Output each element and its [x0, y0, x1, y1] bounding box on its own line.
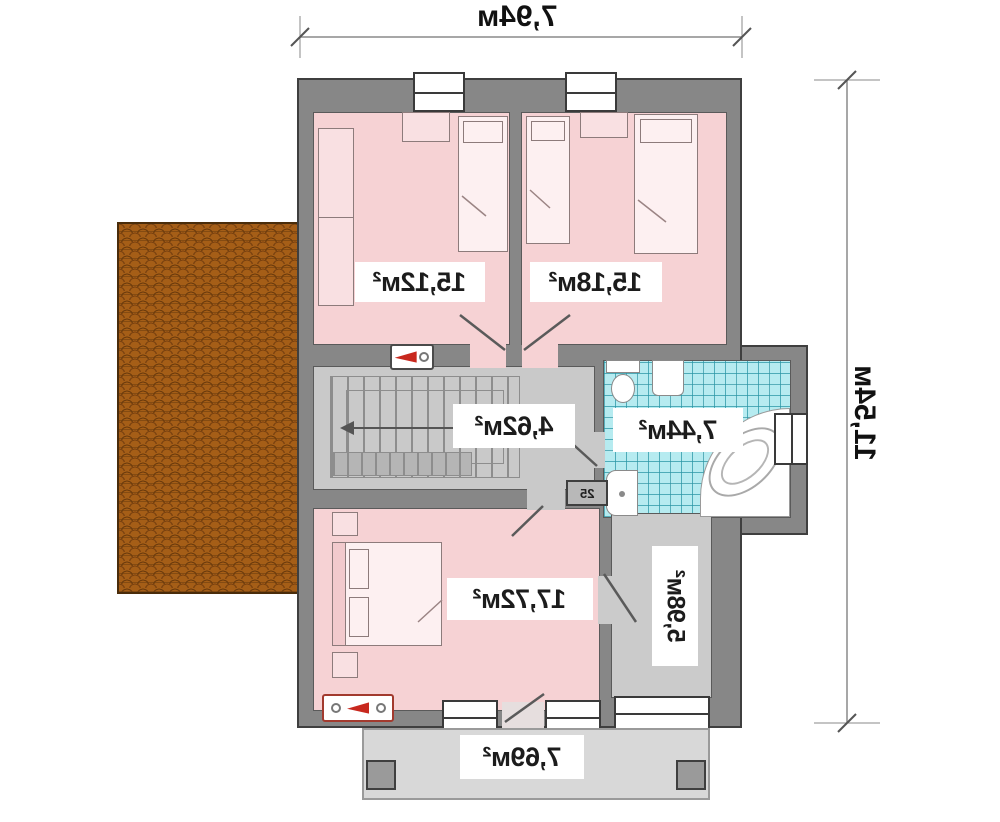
double-bed-bedroom-bottom: [332, 542, 442, 646]
dim-tick: [733, 28, 751, 46]
sink: [652, 360, 684, 396]
floor-plan-canvas: 25: [0, 0, 1000, 822]
washbasin-small: [606, 470, 638, 516]
bed-bedroom-tl: [458, 116, 508, 252]
label-dressing-room: 5,98м²: [652, 546, 698, 666]
panel-circle-icon: [419, 352, 429, 362]
toilet-bowl: [611, 374, 635, 403]
toilet-tank: [606, 360, 640, 373]
door-opening-bedroom-tl: [470, 344, 506, 368]
door-opening-bedroom-tr: [522, 344, 558, 368]
label-bedroom-top-right: 15,18м²: [530, 262, 662, 302]
window-top-2: [565, 72, 617, 112]
window-bathroom: [774, 413, 808, 465]
closet-bedroom-tr: [580, 112, 628, 138]
dim-tick: [838, 71, 856, 89]
balcony-pillar-right: [676, 760, 706, 790]
staircase-lower-flight: [332, 452, 472, 476]
window-dressing: [614, 696, 710, 730]
area-text: 15,18м²: [549, 267, 642, 298]
dim-text: 11,54м: [847, 365, 881, 461]
electric-panel-symbol: [390, 344, 434, 370]
nightstand-top: [332, 512, 358, 536]
red-triangle-icon: [395, 350, 417, 364]
bed1-bedroom-tr: [526, 116, 570, 244]
door-opening-bathroom: [593, 432, 605, 468]
label-bathroom: 7,44м²: [613, 408, 743, 452]
dim-text: 7,94м: [477, 0, 558, 34]
dimension-width-label: 7,94м: [437, 0, 597, 34]
balcony-pillar-left: [366, 760, 396, 790]
area-text: 7,44м²: [639, 415, 718, 446]
window-top-1: [413, 72, 465, 112]
radiator-symbol: [322, 694, 394, 722]
radiator-circle-right: [376, 703, 386, 713]
duct-shaft: 25: [566, 480, 608, 506]
area-text: 17,72м²: [473, 584, 566, 615]
label-bedroom-bottom: 17,72м²: [447, 578, 593, 620]
door-opening-dressing: [598, 576, 613, 624]
label-stair-hall: 4,62м²: [453, 404, 575, 448]
label-bedroom-top-left: 15,12м²: [355, 262, 485, 302]
bed2-bedroom-tr: [634, 114, 698, 254]
door-opening-balcony: [502, 702, 544, 728]
dim-tick: [838, 714, 856, 732]
dimension-height-label: 11,54м: [845, 348, 883, 478]
area-text: 7,69м²: [483, 742, 562, 773]
label-balcony: 7,69м²: [460, 735, 584, 779]
wardrobe-bedroom-tl: [318, 128, 354, 306]
radiator-circle-left: [331, 703, 341, 713]
area-text: 5,98м²: [661, 570, 690, 642]
closet-bedroom-tl: [402, 112, 450, 142]
area-text: 15,12м²: [373, 267, 466, 298]
dim-tick: [291, 28, 309, 46]
area-text: 4,62м²: [475, 411, 554, 442]
door-opening-bedroom-bottom: [527, 488, 565, 510]
duct-shaft-label: 25: [580, 486, 594, 501]
radiator-red-triangle: [347, 701, 369, 715]
nightstand-bottom: [332, 652, 358, 678]
roof-brick-area: [117, 222, 299, 594]
